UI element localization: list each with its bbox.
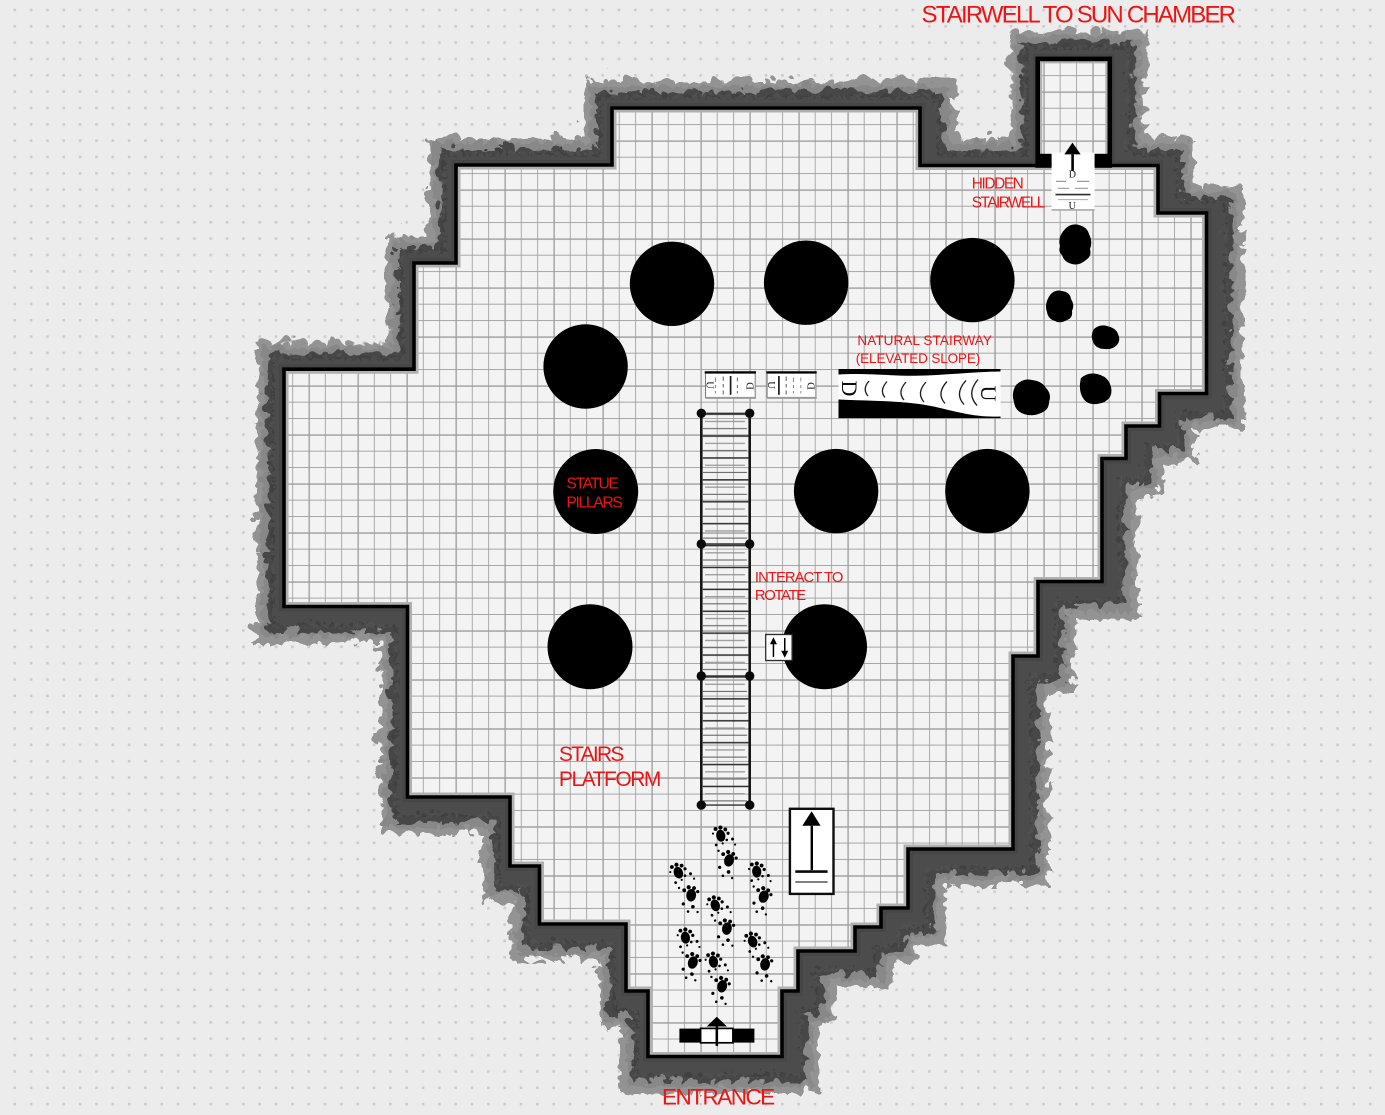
svg-text:PLATFORM: PLATFORM	[559, 768, 662, 791]
svg-text:D: D	[837, 381, 862, 397]
svg-text:U: U	[976, 386, 1001, 402]
svg-text:STAIRWELL TO SUN CHAMBER: STAIRWELL TO SUN CHAMBER	[922, 2, 1237, 29]
svg-text:ROTATE: ROTATE	[755, 588, 806, 604]
svg-text:INTERACT TO: INTERACT TO	[755, 570, 844, 586]
svg-text:HIDDEN: HIDDEN	[972, 175, 1024, 192]
svg-text:STAIRS: STAIRS	[559, 743, 625, 766]
svg-text:STAIRWELL: STAIRWELL	[972, 194, 1046, 211]
svg-text:U: U	[1069, 201, 1077, 212]
svg-text:NATURAL STAIRWAY: NATURAL STAIRWAY	[857, 333, 992, 348]
svg-text:D: D	[806, 382, 817, 390]
svg-text:D: D	[746, 382, 757, 390]
svg-text:D: D	[1069, 170, 1076, 181]
svg-text:ENTRANCE: ENTRANCE	[662, 1085, 775, 1110]
svg-text:U: U	[765, 381, 776, 389]
svg-text:U: U	[704, 381, 715, 389]
svg-text:PILLARS: PILLARS	[566, 494, 623, 511]
svg-text:STATUE: STATUE	[566, 476, 619, 493]
svg-text:(ELEVATED SLOPE): (ELEVATED SLOPE)	[856, 351, 981, 366]
